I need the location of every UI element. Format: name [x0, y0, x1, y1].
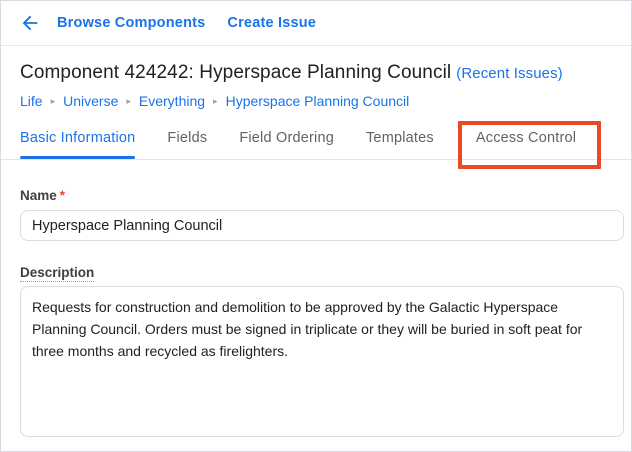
breadcrumb-link-everything[interactable]: Everything — [139, 93, 205, 109]
arrow-left-icon — [19, 12, 41, 34]
create-issue-link[interactable]: Create Issue — [227, 15, 316, 31]
chevron-right-icon: ▸ — [213, 97, 218, 106]
description-label-text: Description — [20, 265, 94, 282]
component-title-text: Component 424242: Hyperspace Planning Co… — [20, 62, 451, 83]
tab-bar: Basic Information Fields Field Ordering … — [1, 117, 631, 160]
tab-basic-information[interactable]: Basic Information — [20, 117, 135, 159]
name-input[interactable] — [20, 210, 624, 241]
required-asterisk: * — [60, 188, 65, 203]
component-edit-page: Browse Components Create Issue Component… — [0, 0, 632, 452]
description-field-label: Description — [20, 265, 631, 280]
breadcrumb: Life ▸ Universe ▸ Everything ▸ Hyperspac… — [20, 93, 612, 109]
browse-components-link[interactable]: Browse Components — [57, 15, 205, 31]
tab-field-ordering[interactable]: Field Ordering — [239, 117, 334, 159]
name-field-label: Name* — [20, 188, 631, 203]
tab-access-control-label: Access Control — [476, 130, 576, 146]
topbar: Browse Components Create Issue — [1, 1, 631, 46]
name-label-text: Name — [20, 188, 57, 203]
tab-access-control[interactable]: Access Control — [476, 117, 576, 159]
recent-issues-link[interactable]: (Recent Issues) — [456, 65, 563, 82]
breadcrumb-link-universe[interactable]: Universe — [63, 93, 118, 109]
back-button[interactable] — [18, 11, 42, 35]
tab-fields[interactable]: Fields — [167, 117, 207, 159]
chevron-right-icon: ▸ — [126, 97, 131, 106]
description-textarea[interactable]: Requests for construction and demolition… — [20, 286, 624, 437]
tab-templates[interactable]: Templates — [366, 117, 434, 159]
breadcrumb-link-life[interactable]: Life — [20, 93, 43, 109]
breadcrumb-link-hyperspace-planning-council[interactable]: Hyperspace Planning Council — [226, 93, 410, 109]
basic-information-form: Name* Description Requests for construct… — [1, 188, 631, 437]
chevron-right-icon: ▸ — [51, 97, 56, 106]
page-title: Component 424242: Hyperspace Planning Co… — [20, 62, 612, 84]
